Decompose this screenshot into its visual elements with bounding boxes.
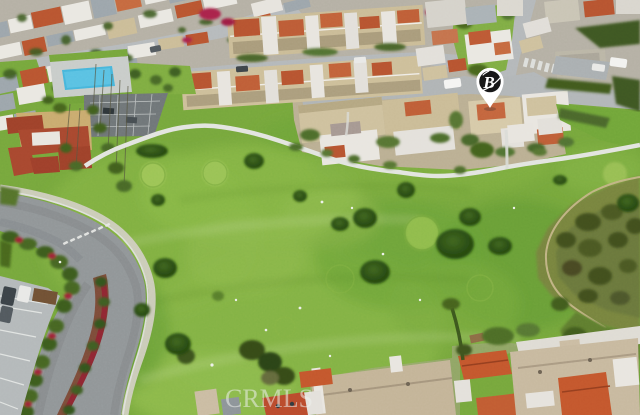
svg-text:CRMLS: CRMLS <box>225 384 313 413</box>
